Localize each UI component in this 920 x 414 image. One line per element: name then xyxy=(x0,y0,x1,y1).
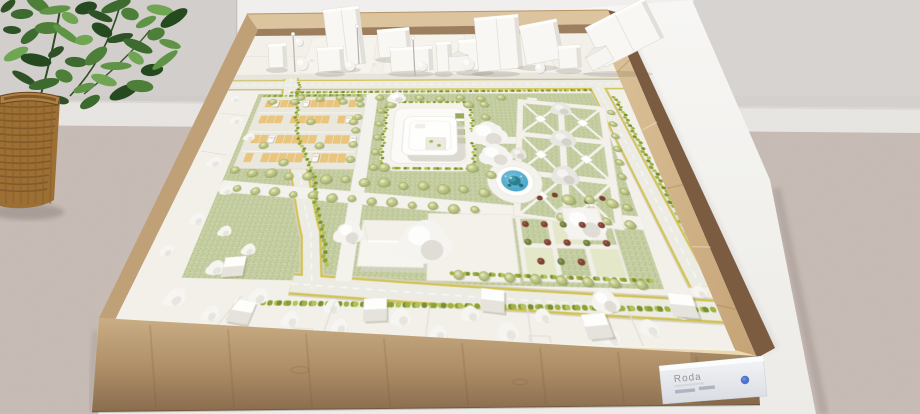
context-tower xyxy=(474,14,523,72)
photo-scene: Roda xyxy=(0,0,920,414)
context-tower xyxy=(558,44,582,68)
label-logo-dot-highlight xyxy=(742,377,746,381)
box-front xyxy=(92,318,760,412)
box-left-wall xyxy=(99,14,258,330)
wicker-basket xyxy=(0,92,64,220)
box-right-inner-wall xyxy=(597,10,757,358)
box-right-outer xyxy=(608,10,775,358)
foreground-layer: Roda xyxy=(0,0,920,414)
context-tower xyxy=(519,19,564,66)
context-tower xyxy=(317,46,345,72)
context-tower xyxy=(268,43,287,68)
box-front-face xyxy=(92,318,760,412)
